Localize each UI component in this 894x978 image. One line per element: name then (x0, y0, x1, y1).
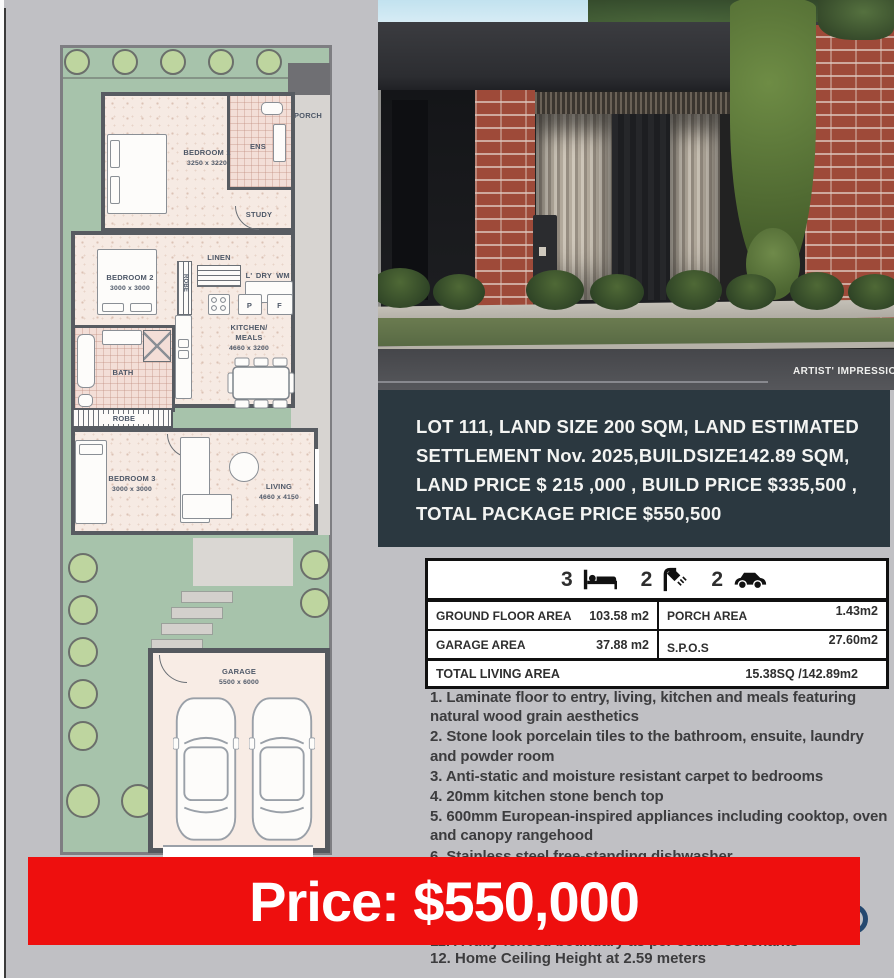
linen-label: LINEN (197, 253, 241, 263)
letterbox-slot (539, 247, 546, 256)
bed-icon (583, 568, 617, 591)
table-cell: S.P.O.S 27.60m2 (657, 629, 886, 658)
vanity (273, 124, 286, 162)
tree-icon (66, 784, 100, 818)
fence-line (63, 77, 291, 79)
tree-icon (112, 49, 138, 75)
tree-icon (160, 49, 186, 75)
ground-floor-area-value: 103.58 m2 (589, 609, 649, 623)
flyer-page: PORCH ENS STUDY BEDROOM 1 3250 x 3220 RO… (0, 0, 894, 978)
tree-icon (68, 595, 98, 625)
pantry: P (238, 294, 262, 315)
table-cell: PORCH AREA 1.43m2 (657, 600, 886, 629)
car-top-view (173, 693, 239, 845)
brick-pillar (475, 90, 535, 337)
garage-door-arc (159, 655, 187, 683)
pantry-label: P (239, 301, 260, 311)
lot-info-box: LOT 111, LAND SIZE 200 SQM, LAND ESTIMAT… (378, 390, 890, 547)
linen-closet (197, 265, 241, 287)
tree-icon (68, 679, 98, 709)
feature-item-4: 4. 20mm kitchen stone bench top (430, 787, 892, 806)
total-living-area-row: TOTAL LIVING AREA 15.38SQ /142.89m2 (428, 658, 886, 686)
artist-impression-caption: ARTIST' IMPRESSION O (793, 366, 894, 377)
total-living-area-value: 15.38SQ /142.89m2 (745, 667, 858, 681)
page-left-border-line (4, 8, 6, 978)
bathtub (77, 334, 95, 388)
porch-area-value: 1.43m2 (836, 604, 878, 618)
shrub (433, 274, 485, 310)
tree-icon (68, 721, 98, 751)
lot-info-text: LOT 111, LAND SIZE 200 SQM, LAND ESTIMAT… (416, 412, 878, 528)
living-label: LIVING 4660 x 4150 (247, 482, 311, 503)
bath-vanity (102, 330, 142, 345)
spos-label: S.P.O.S (667, 641, 709, 655)
toilet (261, 102, 283, 115)
feature-item-1: 1. Laminate floor to entry, living, kitc… (430, 688, 892, 726)
robe2-label: ROBE (180, 274, 188, 292)
bath-count: 2 (641, 568, 653, 592)
rug (229, 452, 259, 482)
bedroom1-label: BEDROOM 1 3250 x 3220 (157, 148, 257, 169)
garage: GARAGE 5500 x 6000 (148, 648, 330, 853)
area-rows: GROUND FLOOR AREA 103.58 m2 PORCH AREA 1… (428, 600, 886, 658)
house-upper-block: ENS STUDY BEDROOM 1 3250 x 3220 (101, 92, 295, 232)
feature-item-2: 2. Stone look porcelain tiles to the bat… (430, 727, 892, 765)
sofa-horizontal (182, 494, 232, 519)
tree-icon (64, 49, 90, 75)
tree-icon (300, 588, 330, 618)
step (171, 607, 223, 619)
deck (193, 538, 293, 586)
shrub (666, 270, 722, 310)
step (181, 591, 233, 603)
bedroom3-label: BEDROOM 3 3000 x 3000 (89, 474, 175, 495)
car-top-view (249, 693, 315, 845)
bed-bath-car-header: 3 2 2 (428, 561, 886, 600)
bedroom2-label: BEDROOM 2 3000 x 3000 (87, 273, 173, 294)
pillow (130, 303, 152, 312)
robe3: ROBE (71, 408, 173, 428)
robe3-label: ROBE (99, 414, 149, 424)
garage-area-value: 37.88 m2 (596, 638, 649, 652)
tree-icon (68, 553, 98, 583)
house-lower-block: BEDROOM 3 3000 x 3000 LIVING 4660 x 4150 (71, 428, 318, 535)
car-icon (733, 570, 767, 590)
feature-list: 1. Laminate floor to entry, living, kitc… (430, 688, 892, 867)
shrub (590, 274, 644, 310)
pillow (102, 303, 124, 312)
garage-label: GARAGE 5500 x 6000 (199, 667, 279, 688)
pillow (110, 176, 120, 204)
bath-label: BATH (101, 368, 145, 378)
porch-area-label: PORCH AREA (667, 609, 747, 623)
area-summary-table: 3 2 2 GROUND FLOOR AREA (425, 558, 889, 689)
table-cell: GROUND FLOOR AREA 103.58 m2 (428, 600, 657, 629)
feature-item-3: 3. Anti-static and moisture resistant ca… (430, 767, 892, 786)
lot-info-line-1: LOT 111, LAND SIZE 200 SQM, LAND ESTIMAT… (416, 412, 878, 441)
shower (143, 330, 171, 362)
step (161, 623, 213, 635)
dining-set (227, 357, 295, 409)
cooktop (208, 294, 230, 315)
shrub (848, 274, 894, 310)
total-living-area-label: TOTAL LIVING AREA (436, 667, 560, 681)
shrub (526, 270, 584, 310)
sink (178, 350, 189, 359)
pillow (110, 140, 120, 168)
floor-plan: PORCH ENS STUDY BEDROOM 1 3250 x 3220 RO… (60, 45, 332, 855)
garage-door-opening (163, 845, 313, 857)
garage-area-label: GARAGE AREA (436, 638, 526, 652)
feature-item-12: 12. Home Ceiling Height at 2.59 meters (430, 950, 892, 967)
house-photo: ARTIST' IMPRESSION O (378, 0, 894, 390)
tree-icon (256, 49, 282, 75)
dryer-label: DRY (253, 271, 275, 281)
bathroom: BATH (75, 325, 175, 412)
tree-icon (300, 550, 330, 580)
shrub (790, 272, 844, 310)
bed-count: 3 (561, 568, 573, 592)
shrub (726, 274, 776, 310)
background-foliage (818, 0, 894, 40)
kitchen-label: KITCHEN/ MEALS 4660 x 3200 (217, 323, 281, 353)
road-lane-line (378, 381, 768, 383)
tree-icon (68, 637, 98, 667)
washer-label: WM (273, 271, 293, 281)
house-middle-block: BEDROOM 2 3000 x 3000 ROBE LINEN L' DRY … (71, 231, 295, 408)
lot-info-line-4: TOTAL PACKAGE PRICE $550,500 (416, 499, 878, 528)
tree-icon (208, 49, 234, 75)
window-head-slats (535, 92, 745, 114)
lot-info-line-3: LAND PRICE $ 215 ,000 , BUILD PRICE $335… (416, 470, 878, 499)
fridge: F (267, 294, 293, 315)
spos-value: 27.60m2 (829, 633, 878, 647)
toilet (78, 394, 93, 407)
window (315, 449, 319, 504)
table-cell: GARAGE AREA 37.88 m2 (428, 629, 657, 658)
shower-icon (662, 567, 687, 592)
robe2: ROBE (177, 261, 192, 315)
fridge-label: F (268, 301, 291, 311)
ground-floor-area-label: GROUND FLOOR AREA (436, 609, 572, 623)
sink (178, 339, 189, 348)
pillow (79, 444, 103, 455)
car-count: 2 (711, 568, 723, 592)
lot-info-line-2: SETTLEMENT Nov. 2025,BUILDSIZE142.89 SQM… (416, 441, 878, 470)
price-banner: Price: $550,000 (28, 857, 860, 945)
price-text: Price: $550,000 (249, 869, 639, 934)
neighbour-wall (288, 63, 330, 95)
feature-item-5: 5. 600mm European-inspired appliances in… (430, 807, 892, 845)
